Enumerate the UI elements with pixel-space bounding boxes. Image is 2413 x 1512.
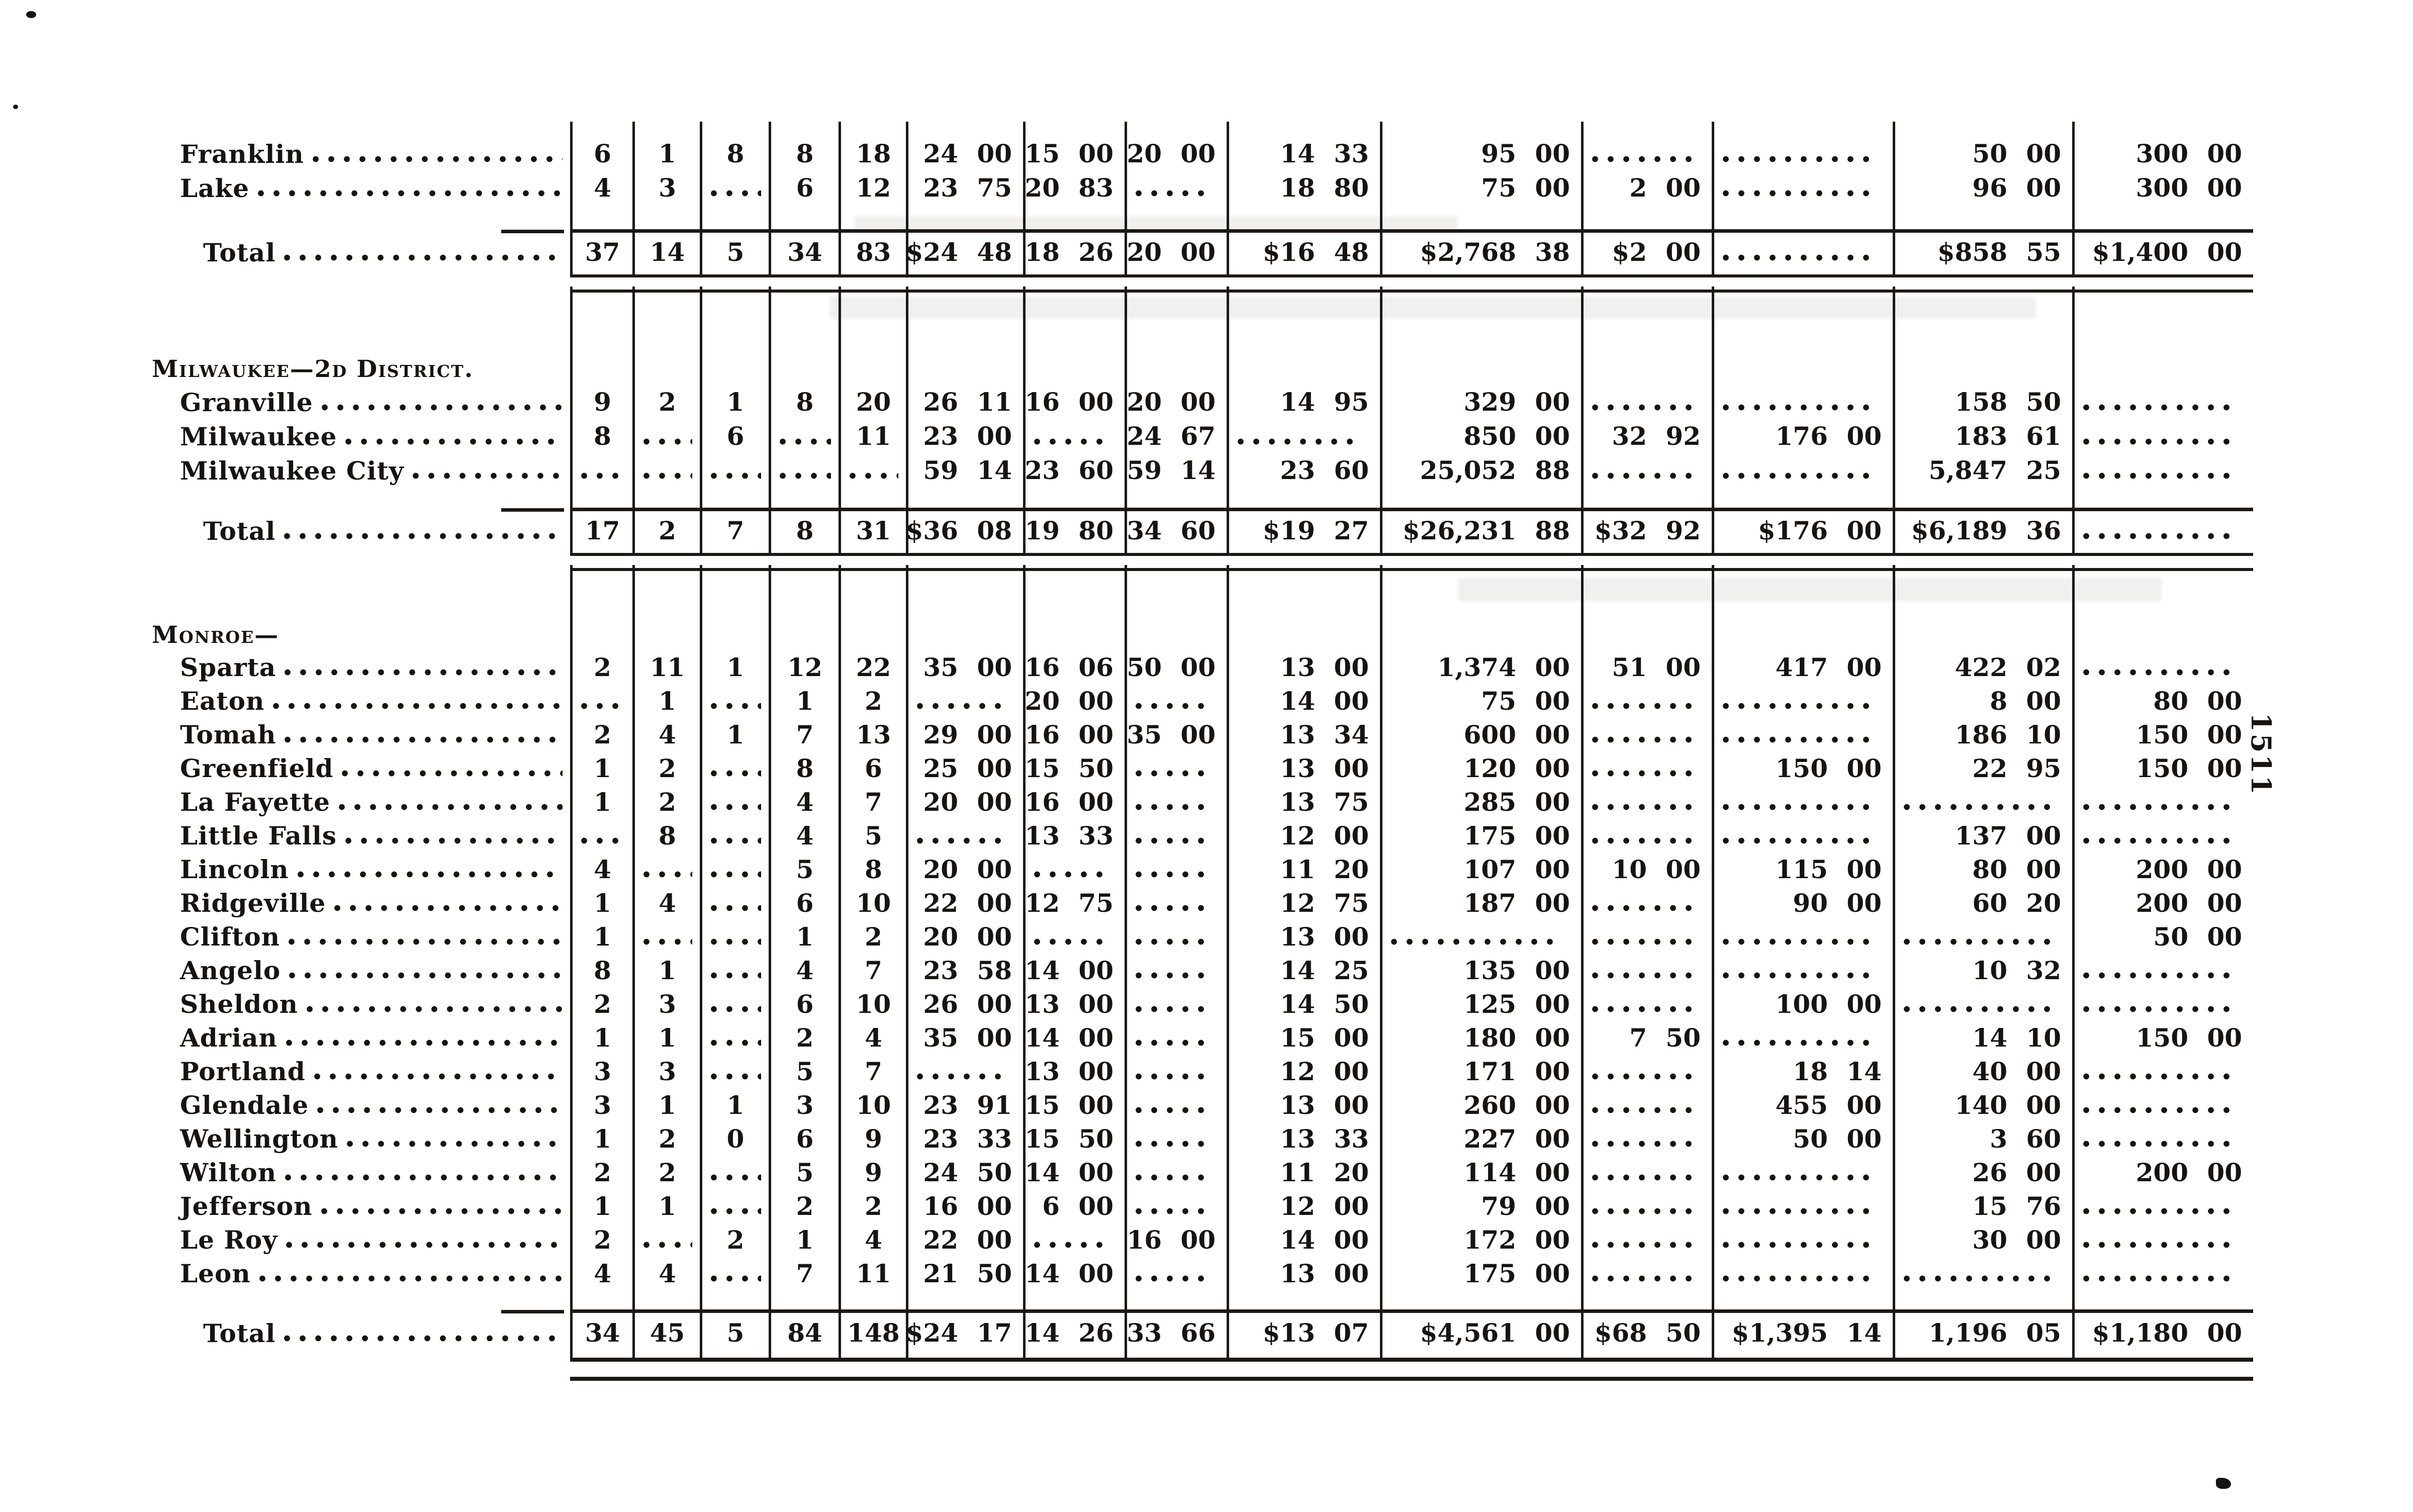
cell-value: 4 bbox=[659, 891, 676, 916]
cell-value: 23 33 bbox=[923, 1126, 1012, 1152]
table-cell: 1 bbox=[570, 886, 632, 920]
table-cell bbox=[700, 1257, 769, 1290]
table-cell: 3 bbox=[632, 987, 700, 1021]
cell-value: 1 bbox=[796, 924, 814, 950]
spacer-cell bbox=[1893, 268, 2072, 274]
cell-value: 50 00 bbox=[1793, 1126, 1882, 1152]
table-cell: 24 50 bbox=[906, 1156, 1023, 1189]
spacer-cell bbox=[839, 287, 906, 353]
dotted-placeholder bbox=[710, 1038, 761, 1047]
cell-value: 6 bbox=[796, 175, 814, 201]
table-cell bbox=[839, 353, 906, 385]
table-cell: 2 bbox=[839, 920, 906, 954]
cell-value: 1 bbox=[727, 655, 745, 680]
table-row: Glendale31131023 9115 0013 00260 00455 0… bbox=[151, 1088, 2253, 1122]
spacer-cell bbox=[1227, 287, 1380, 353]
table-cell: 227 00 bbox=[1380, 1122, 1581, 1156]
dotted-leader bbox=[306, 1005, 563, 1013]
table-cell bbox=[1227, 419, 1380, 453]
table-cell: $20 00 bbox=[1125, 236, 1227, 268]
cell-value: 175 00 bbox=[1464, 1261, 1570, 1286]
spacer-cell bbox=[1023, 287, 1125, 353]
table-cell bbox=[1125, 920, 1227, 954]
rule-stub bbox=[151, 229, 570, 233]
table-row: Lincoln45820 0011 20107 0010 00115 0080 … bbox=[151, 853, 2253, 886]
cell-value: 6 00 bbox=[1042, 1194, 1113, 1219]
table-cell: 20 00 bbox=[1125, 137, 1227, 171]
dotted-placeholder bbox=[1135, 1207, 1208, 1215]
table-row: Lake4361223 7520 8318 8075 002 0096 0030… bbox=[151, 171, 2253, 205]
double-rule-row bbox=[151, 553, 2253, 565]
cell-value: 13 bbox=[856, 722, 891, 747]
cell-value: $6,189 36 bbox=[1911, 518, 2061, 543]
table-cell: 11 bbox=[839, 1257, 906, 1290]
cell-value: 11 bbox=[856, 424, 891, 449]
section-header: Milwaukee—2d District. bbox=[151, 355, 474, 383]
table-cell: 4 bbox=[839, 1223, 906, 1257]
table-cell: 4 bbox=[769, 819, 839, 853]
table-cell bbox=[1712, 453, 1893, 488]
cell-value: 148 bbox=[847, 1320, 899, 1346]
cell-value: 1 bbox=[727, 390, 745, 415]
table-cell: 1 bbox=[632, 137, 700, 171]
rule-line bbox=[1581, 508, 1712, 512]
row-label: Eaton bbox=[151, 686, 264, 716]
table-cell bbox=[1712, 819, 1893, 853]
cell-value: 2 bbox=[594, 1160, 611, 1185]
table-cell bbox=[2072, 453, 2253, 488]
cell-value: 8 bbox=[796, 141, 814, 166]
dotted-placeholder bbox=[916, 702, 1004, 710]
spacer-cell bbox=[1227, 122, 1380, 137]
table-cell: 2 bbox=[700, 1223, 769, 1257]
spacer-cell bbox=[1581, 565, 1712, 619]
row-stub: Clifton bbox=[151, 920, 570, 954]
cell-value: 5 bbox=[727, 240, 745, 265]
table-cell: 14 00 bbox=[1227, 684, 1380, 718]
dotted-leader bbox=[346, 1140, 563, 1148]
cell-value: 13 00 bbox=[1280, 756, 1369, 781]
table-cell bbox=[1125, 1088, 1227, 1122]
spacer-cell bbox=[906, 547, 1023, 553]
cell-value: 13 33 bbox=[1280, 1126, 1369, 1152]
table-cell: 8 bbox=[570, 954, 632, 987]
dotted-placeholder bbox=[710, 870, 761, 879]
table-cell: $4,561 00 bbox=[1380, 1316, 1581, 1350]
spacer-cell bbox=[570, 565, 632, 619]
spacer-cell bbox=[1380, 547, 1581, 553]
table-cell: 8 bbox=[769, 137, 839, 171]
table-cell: 35 00 bbox=[906, 1021, 1023, 1055]
spacer-cell bbox=[1125, 268, 1227, 274]
dotted-placeholder bbox=[1722, 937, 1874, 946]
spacer-cell bbox=[1227, 205, 1380, 229]
cell-value: 11 20 bbox=[1280, 1160, 1369, 1185]
cell-value: 4 bbox=[865, 1025, 882, 1051]
cell-value: 4 bbox=[594, 857, 611, 882]
row-label: Jefferson bbox=[151, 1191, 313, 1221]
dotted-placeholder bbox=[2082, 803, 2235, 811]
cell-value: $1,400 00 bbox=[2092, 240, 2242, 265]
cell-value: 14 50 bbox=[1280, 992, 1369, 1017]
cell-value: $2 00 bbox=[1612, 240, 1701, 265]
cell-value: 9 bbox=[865, 1126, 882, 1152]
cell-value: 186 10 bbox=[1955, 722, 2061, 747]
table-cell: 14 25 bbox=[1227, 954, 1380, 987]
spacer-cell bbox=[1125, 287, 1227, 353]
table-cell: 1 bbox=[632, 684, 700, 718]
spacer-cell bbox=[632, 268, 700, 274]
table-cell: 23 75 bbox=[906, 171, 1023, 205]
table-cell: 6 bbox=[769, 1122, 839, 1156]
cell-value: 75 00 bbox=[1481, 689, 1570, 714]
row-stub: Tomah bbox=[151, 718, 570, 751]
spacer-cell bbox=[632, 205, 700, 229]
table-cell: 29 00 bbox=[906, 718, 1023, 751]
table-cell: 3 bbox=[570, 1055, 632, 1088]
dotted-placeholder bbox=[1722, 1241, 1874, 1249]
row-stub: Angelo bbox=[151, 954, 570, 987]
table-cell: 4 bbox=[769, 785, 839, 819]
table-cell: 22 00 bbox=[906, 1223, 1023, 1257]
dotted-placeholder bbox=[1591, 836, 1693, 845]
cell-value: 2 00 bbox=[1629, 175, 1701, 201]
table-cell: 2 bbox=[839, 684, 906, 718]
table-cell: 6 bbox=[769, 886, 839, 920]
table-cell bbox=[769, 353, 839, 385]
table-cell: 2 bbox=[632, 515, 700, 547]
row-label: Wellington bbox=[151, 1124, 338, 1154]
table-cell bbox=[1125, 353, 1227, 385]
table-cell bbox=[700, 886, 769, 920]
dotted-placeholder bbox=[1591, 1140, 1693, 1148]
table-cell: 2 bbox=[570, 650, 632, 684]
table-cell: 14 00 bbox=[1023, 954, 1125, 987]
table-cell bbox=[1023, 419, 1125, 453]
table-cell: 1 bbox=[632, 1021, 700, 1055]
spacer-cell bbox=[1380, 287, 1581, 353]
dotted-placeholder bbox=[1591, 904, 1693, 912]
table-cell bbox=[1581, 751, 1712, 785]
table-row: Jefferson112216 006 0012 0079 0015 76 bbox=[151, 1189, 2253, 1223]
table-cell: 14 95 bbox=[1227, 385, 1380, 419]
table-cell: 51 00 bbox=[1581, 650, 1712, 684]
table-cell: 26 00 bbox=[1893, 1156, 2072, 1189]
table-cell: 34 bbox=[570, 1316, 632, 1350]
table-cell: 600 00 bbox=[1380, 718, 1581, 751]
table-cell: 80 00 bbox=[2072, 684, 2253, 718]
table-cell: 7 bbox=[769, 1257, 839, 1290]
cell-value: 8 bbox=[594, 424, 611, 449]
dotted-placeholder bbox=[2082, 403, 2235, 412]
table-cell: 75 00 bbox=[1380, 171, 1581, 205]
cell-value: 2 bbox=[659, 390, 676, 415]
table-cell: 186 10 bbox=[1893, 718, 2072, 751]
table-cell bbox=[700, 819, 769, 853]
cell-value: 25,052 88 bbox=[1420, 458, 1570, 483]
cell-value: 35 00 bbox=[1127, 722, 1216, 747]
spacer-cell bbox=[1125, 488, 1227, 508]
table-cell: 100 00 bbox=[1712, 987, 1893, 1021]
spacer-cell bbox=[700, 268, 769, 274]
dotted-placeholder bbox=[1033, 870, 1106, 879]
table-cell bbox=[1125, 751, 1227, 785]
table-cell: $858 55 bbox=[1893, 236, 2072, 268]
dotted-leader bbox=[344, 836, 563, 845]
spacer-cell bbox=[1893, 488, 2072, 508]
cell-value: 14 00 bbox=[1025, 1160, 1113, 1185]
dotted-placeholder bbox=[1591, 1005, 1693, 1013]
spacer-cell bbox=[1712, 1350, 1893, 1358]
spacer-cell bbox=[700, 122, 769, 137]
table-cell bbox=[2072, 785, 2253, 819]
spacer-cell bbox=[632, 547, 700, 553]
rule-line bbox=[632, 229, 700, 233]
spacer-cell bbox=[839, 565, 906, 619]
table-cell: $13 07 bbox=[1227, 1316, 1380, 1350]
cell-value: 14 25 bbox=[1280, 958, 1369, 983]
rule-line bbox=[906, 229, 1023, 233]
table-cell: 2 bbox=[769, 1189, 839, 1223]
dotted-placeholder bbox=[1722, 702, 1874, 710]
cell-value: 200 00 bbox=[2136, 1160, 2242, 1185]
cell-value: 6 bbox=[865, 756, 882, 781]
cell-value: 15 00 bbox=[1025, 1093, 1113, 1118]
dotted-placeholder bbox=[1591, 1207, 1693, 1215]
table-cell: 20 00 bbox=[906, 920, 1023, 954]
spacer-cell bbox=[1712, 1290, 1893, 1309]
spacer-cell bbox=[1712, 547, 1893, 553]
table-cell: $32 92 bbox=[1581, 515, 1712, 547]
spacer-cell bbox=[1893, 1350, 2072, 1358]
cell-value: 20 00 bbox=[1025, 689, 1113, 714]
spacer-cell bbox=[769, 287, 839, 353]
spacer-cell bbox=[839, 1290, 906, 1309]
table-cell: 3 bbox=[632, 1055, 700, 1088]
cell-value: 300 00 bbox=[2136, 141, 2242, 166]
dotted-placeholder bbox=[849, 471, 898, 480]
spacer bbox=[151, 205, 2253, 229]
double-rule-row bbox=[151, 1358, 2253, 1373]
table-cell bbox=[700, 171, 769, 205]
table-cell: 6 00 bbox=[1023, 1189, 1125, 1223]
rule-line bbox=[1125, 229, 1227, 233]
cell-value: 125 00 bbox=[1464, 992, 1570, 1017]
dotted-leader bbox=[257, 189, 563, 198]
table-cell: 14 00 bbox=[1227, 1223, 1380, 1257]
table-cell: 25 00 bbox=[906, 751, 1023, 785]
spacer-cell bbox=[906, 1290, 1023, 1309]
cell-value: 14 bbox=[650, 240, 685, 265]
cell-value: 3 bbox=[796, 1093, 814, 1118]
cell-value: 60 20 bbox=[1972, 891, 2061, 916]
cell-value: 20 00 bbox=[923, 924, 1012, 950]
rule-line bbox=[1125, 1309, 1227, 1313]
cell-value: 2 bbox=[594, 992, 611, 1017]
spacer-cell bbox=[151, 1290, 570, 1309]
cell-value: 6 bbox=[594, 141, 611, 166]
spacer-cell bbox=[1581, 1290, 1712, 1309]
cell-value: 9 bbox=[865, 1160, 882, 1185]
cell-value: 14 95 bbox=[1280, 390, 1369, 415]
ledger-table: Franklin61881824 0015 0020 0014 3395 005… bbox=[151, 0, 2253, 1373]
spacer-cell bbox=[1023, 1290, 1125, 1309]
row-stub: Lake bbox=[151, 171, 570, 205]
table-cell bbox=[906, 684, 1023, 718]
rule-line bbox=[1893, 1309, 2072, 1313]
cell-value: 15 00 bbox=[1025, 141, 1113, 166]
rule-line bbox=[769, 508, 839, 512]
table-cell: 13 00 bbox=[1227, 751, 1380, 785]
table-cell: 12 bbox=[839, 171, 906, 205]
row-stub: Milwaukee City bbox=[151, 453, 570, 488]
rule-line bbox=[632, 508, 700, 512]
spacer-cell bbox=[906, 488, 1023, 508]
table-cell: 12 00 bbox=[1227, 1055, 1380, 1088]
cell-value: 23 75 bbox=[923, 175, 1012, 201]
cell-value: $33 66 bbox=[1125, 1320, 1216, 1346]
table-cell bbox=[570, 684, 632, 718]
table-cell bbox=[1581, 920, 1712, 954]
table-cell: 15 00 bbox=[1227, 1021, 1380, 1055]
table-cell: 14 33 bbox=[1227, 137, 1380, 171]
cell-value: 35 00 bbox=[923, 1025, 1012, 1051]
table-cell: 2 bbox=[570, 1156, 632, 1189]
table-cell bbox=[2072, 1055, 2253, 1088]
cell-value: 7 bbox=[865, 1059, 882, 1084]
dotted-placeholder bbox=[710, 971, 761, 980]
dotted-placeholder bbox=[916, 1072, 1004, 1081]
table-cell bbox=[2072, 515, 2253, 547]
table-cell: 12 00 bbox=[1227, 819, 1380, 853]
rule-line bbox=[1581, 1309, 1712, 1313]
dotted-placeholder bbox=[1903, 937, 2054, 946]
table-cell: 96 00 bbox=[1893, 171, 2072, 205]
table-cell: 175 00 bbox=[1380, 819, 1581, 853]
spacer-cell bbox=[1023, 205, 1125, 229]
spacer-cell bbox=[151, 205, 570, 229]
row-label: Wilton bbox=[151, 1158, 276, 1187]
cell-value: 18 bbox=[856, 141, 891, 166]
row-label: Adrian bbox=[151, 1023, 277, 1053]
dotted-placeholder bbox=[1591, 971, 1693, 980]
table-cell bbox=[1581, 1156, 1712, 1189]
cell-value: 12 00 bbox=[1280, 1194, 1369, 1219]
table-cell: 12 bbox=[769, 650, 839, 684]
dotted-placeholder bbox=[2082, 1140, 2235, 1148]
table-cell bbox=[1023, 353, 1125, 385]
dotted-placeholder bbox=[1135, 1005, 1208, 1013]
spacer-cell bbox=[1581, 547, 1712, 553]
spacer-cell bbox=[1581, 122, 1712, 137]
table-cell: $33 66 bbox=[1125, 1316, 1227, 1350]
table-cell bbox=[2072, 353, 2253, 385]
row-stub: Jefferson bbox=[151, 1189, 570, 1223]
table-cell bbox=[2072, 419, 2253, 453]
table-cell: 1 bbox=[570, 1122, 632, 1156]
spacer-cell bbox=[632, 122, 700, 137]
cell-value: 2 bbox=[865, 689, 882, 714]
dotted-leader bbox=[344, 437, 563, 446]
dotted-placeholder bbox=[2082, 471, 2235, 480]
spacer-cell bbox=[570, 287, 632, 353]
table-cell: 6 bbox=[570, 137, 632, 171]
cell-value: 8 bbox=[796, 390, 814, 415]
table-cell: 1 bbox=[700, 385, 769, 419]
cell-value: 850 00 bbox=[1464, 424, 1570, 449]
table-cell bbox=[1893, 353, 2072, 385]
table-cell bbox=[1581, 385, 1712, 419]
cell-value: 14 00 bbox=[1280, 1227, 1369, 1253]
rule-line bbox=[570, 508, 632, 512]
table-cell: 285 00 bbox=[1380, 785, 1581, 819]
spacer-cell bbox=[570, 1350, 632, 1358]
table-cell bbox=[632, 920, 700, 954]
spacer-cell bbox=[570, 268, 632, 274]
row-label: Le Roy bbox=[151, 1225, 277, 1255]
table-cell bbox=[700, 785, 769, 819]
rule-line bbox=[1227, 508, 1380, 512]
cell-value: 34 bbox=[585, 1320, 620, 1346]
spacer-cell bbox=[1227, 547, 1380, 553]
table-cell: 11 bbox=[632, 650, 700, 684]
cell-value: $1,395 14 bbox=[1732, 1320, 1882, 1346]
table-cell: 8 00 bbox=[1893, 684, 2072, 718]
cell-value: 14 00 bbox=[1280, 689, 1369, 714]
cell-value: 59 14 bbox=[923, 458, 1012, 483]
page-number: 1511 bbox=[2245, 713, 2277, 796]
table-cell: 137 00 bbox=[1893, 819, 2072, 853]
row-stub: Milwaukee—2d District. bbox=[151, 353, 570, 385]
table-cell: 3 bbox=[769, 1088, 839, 1122]
table-cell bbox=[906, 353, 1023, 385]
cell-value: 3 60 bbox=[1990, 1126, 2061, 1152]
rule-line bbox=[2072, 508, 2253, 512]
cell-value: 79 00 bbox=[1481, 1194, 1570, 1219]
spacer-cell bbox=[632, 287, 700, 353]
table-cell: 16 06 bbox=[1023, 650, 1125, 684]
cell-value: 2 bbox=[796, 1194, 814, 1219]
table-cell bbox=[1712, 785, 1893, 819]
table-cell: 24 67 bbox=[1125, 419, 1227, 453]
cell-value: 171 00 bbox=[1464, 1059, 1570, 1084]
dotted-placeholder bbox=[1591, 735, 1693, 744]
table-cell: 18 14 bbox=[1712, 1055, 1893, 1088]
row-stub: Total bbox=[151, 1316, 570, 1350]
table-cell bbox=[1712, 137, 1893, 171]
table-cell: $68 50 bbox=[1581, 1316, 1712, 1350]
dotted-placeholder bbox=[1722, 803, 1874, 811]
cell-value: 16 06 bbox=[1025, 655, 1113, 680]
cell-value: 2 bbox=[659, 518, 676, 543]
table-cell bbox=[570, 819, 632, 853]
cell-value: 16 00 bbox=[1127, 1227, 1216, 1253]
dotted-placeholder bbox=[1033, 1241, 1106, 1249]
row-stub: Portland bbox=[151, 1055, 570, 1088]
spacer-cell bbox=[2072, 1290, 2253, 1309]
dotted-placeholder bbox=[1591, 155, 1693, 163]
table-cell: 7 bbox=[839, 1055, 906, 1088]
cell-value: 20 83 bbox=[1025, 175, 1113, 201]
row-stub: Leon bbox=[151, 1257, 570, 1290]
table-cell: 175 00 bbox=[1380, 1257, 1581, 1290]
table-cell: 200 00 bbox=[2072, 853, 2253, 886]
dotted-placeholder bbox=[1591, 471, 1693, 480]
row-stub: Monroe— bbox=[151, 619, 570, 650]
dotted-placeholder bbox=[1135, 1140, 1208, 1148]
table-cell: 50 00 bbox=[1712, 1122, 1893, 1156]
cell-value: 23 60 bbox=[1280, 458, 1369, 483]
